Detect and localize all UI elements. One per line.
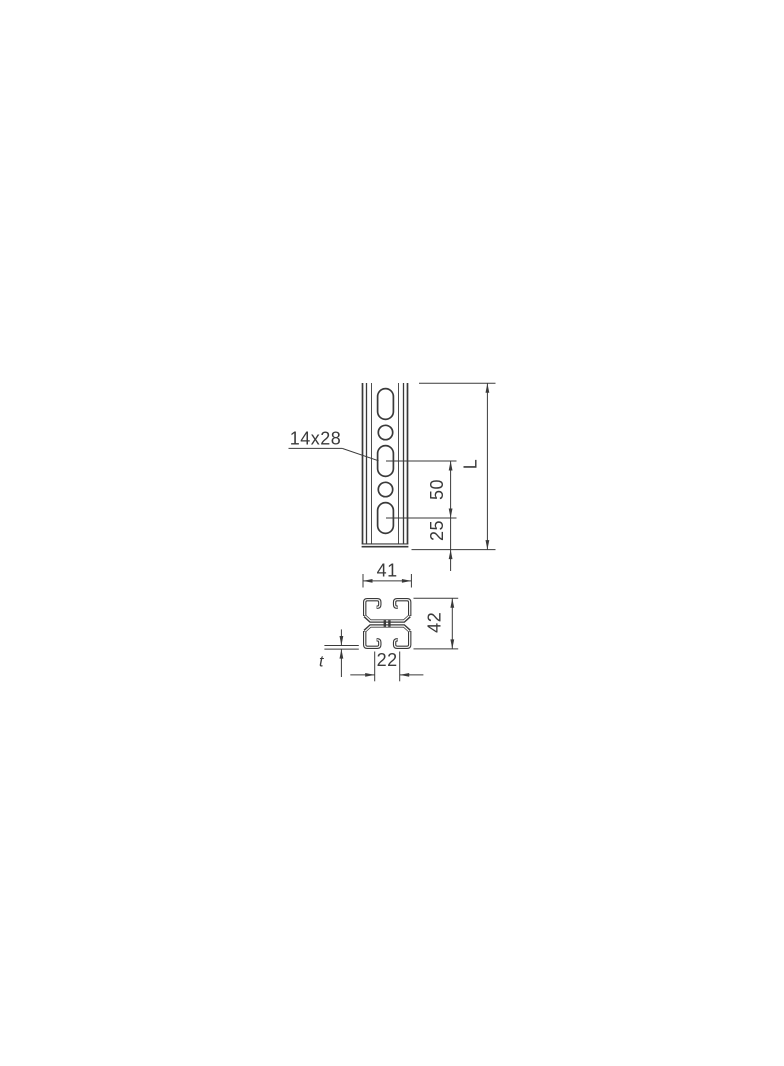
slot-hole xyxy=(378,389,394,420)
arrow-up xyxy=(486,383,490,393)
profile-outline-core xyxy=(365,600,410,648)
slot-label-leader xyxy=(342,448,378,460)
dim-label-41: 41 xyxy=(377,561,398,581)
dim-label-50: 50 xyxy=(427,479,447,500)
rail-edge-lines xyxy=(363,383,408,544)
dim-label-22: 22 xyxy=(377,650,398,670)
dim-label-25: 25 xyxy=(427,520,447,541)
profile-outline-outer xyxy=(365,600,410,648)
section-view-labels: 41 42 22 t xyxy=(319,561,445,671)
arrow-down xyxy=(449,509,453,519)
rail-technical-drawing: 14x28 50 25 L xyxy=(0,0,784,1066)
arrow-up xyxy=(450,598,454,608)
round-hole xyxy=(378,425,392,439)
round-hole xyxy=(378,482,392,496)
dim-label-42: 42 xyxy=(425,612,445,633)
dim-label-length: L xyxy=(461,459,481,470)
rail-bottom-edge xyxy=(362,544,409,547)
dim-label-thickness: t xyxy=(319,654,324,671)
arrow-right xyxy=(402,579,412,583)
arrow-down xyxy=(486,540,490,550)
rail-cross-section xyxy=(365,600,410,648)
arrow-up xyxy=(449,550,453,560)
front-view-dimensions xyxy=(289,383,496,571)
arrow-down xyxy=(450,639,454,649)
arrow-down xyxy=(340,636,344,646)
arrow-up xyxy=(449,461,453,471)
front-view-arrowheads xyxy=(449,383,490,559)
arrow-left xyxy=(363,579,373,583)
arrow-right xyxy=(365,673,375,677)
arrow-up xyxy=(340,649,344,659)
slot-size-label: 14x28 xyxy=(290,429,342,449)
arrow-left xyxy=(400,673,410,677)
rail-front-view xyxy=(362,383,409,547)
technical-drawing-page: 14x28 50 25 L xyxy=(0,0,784,1066)
